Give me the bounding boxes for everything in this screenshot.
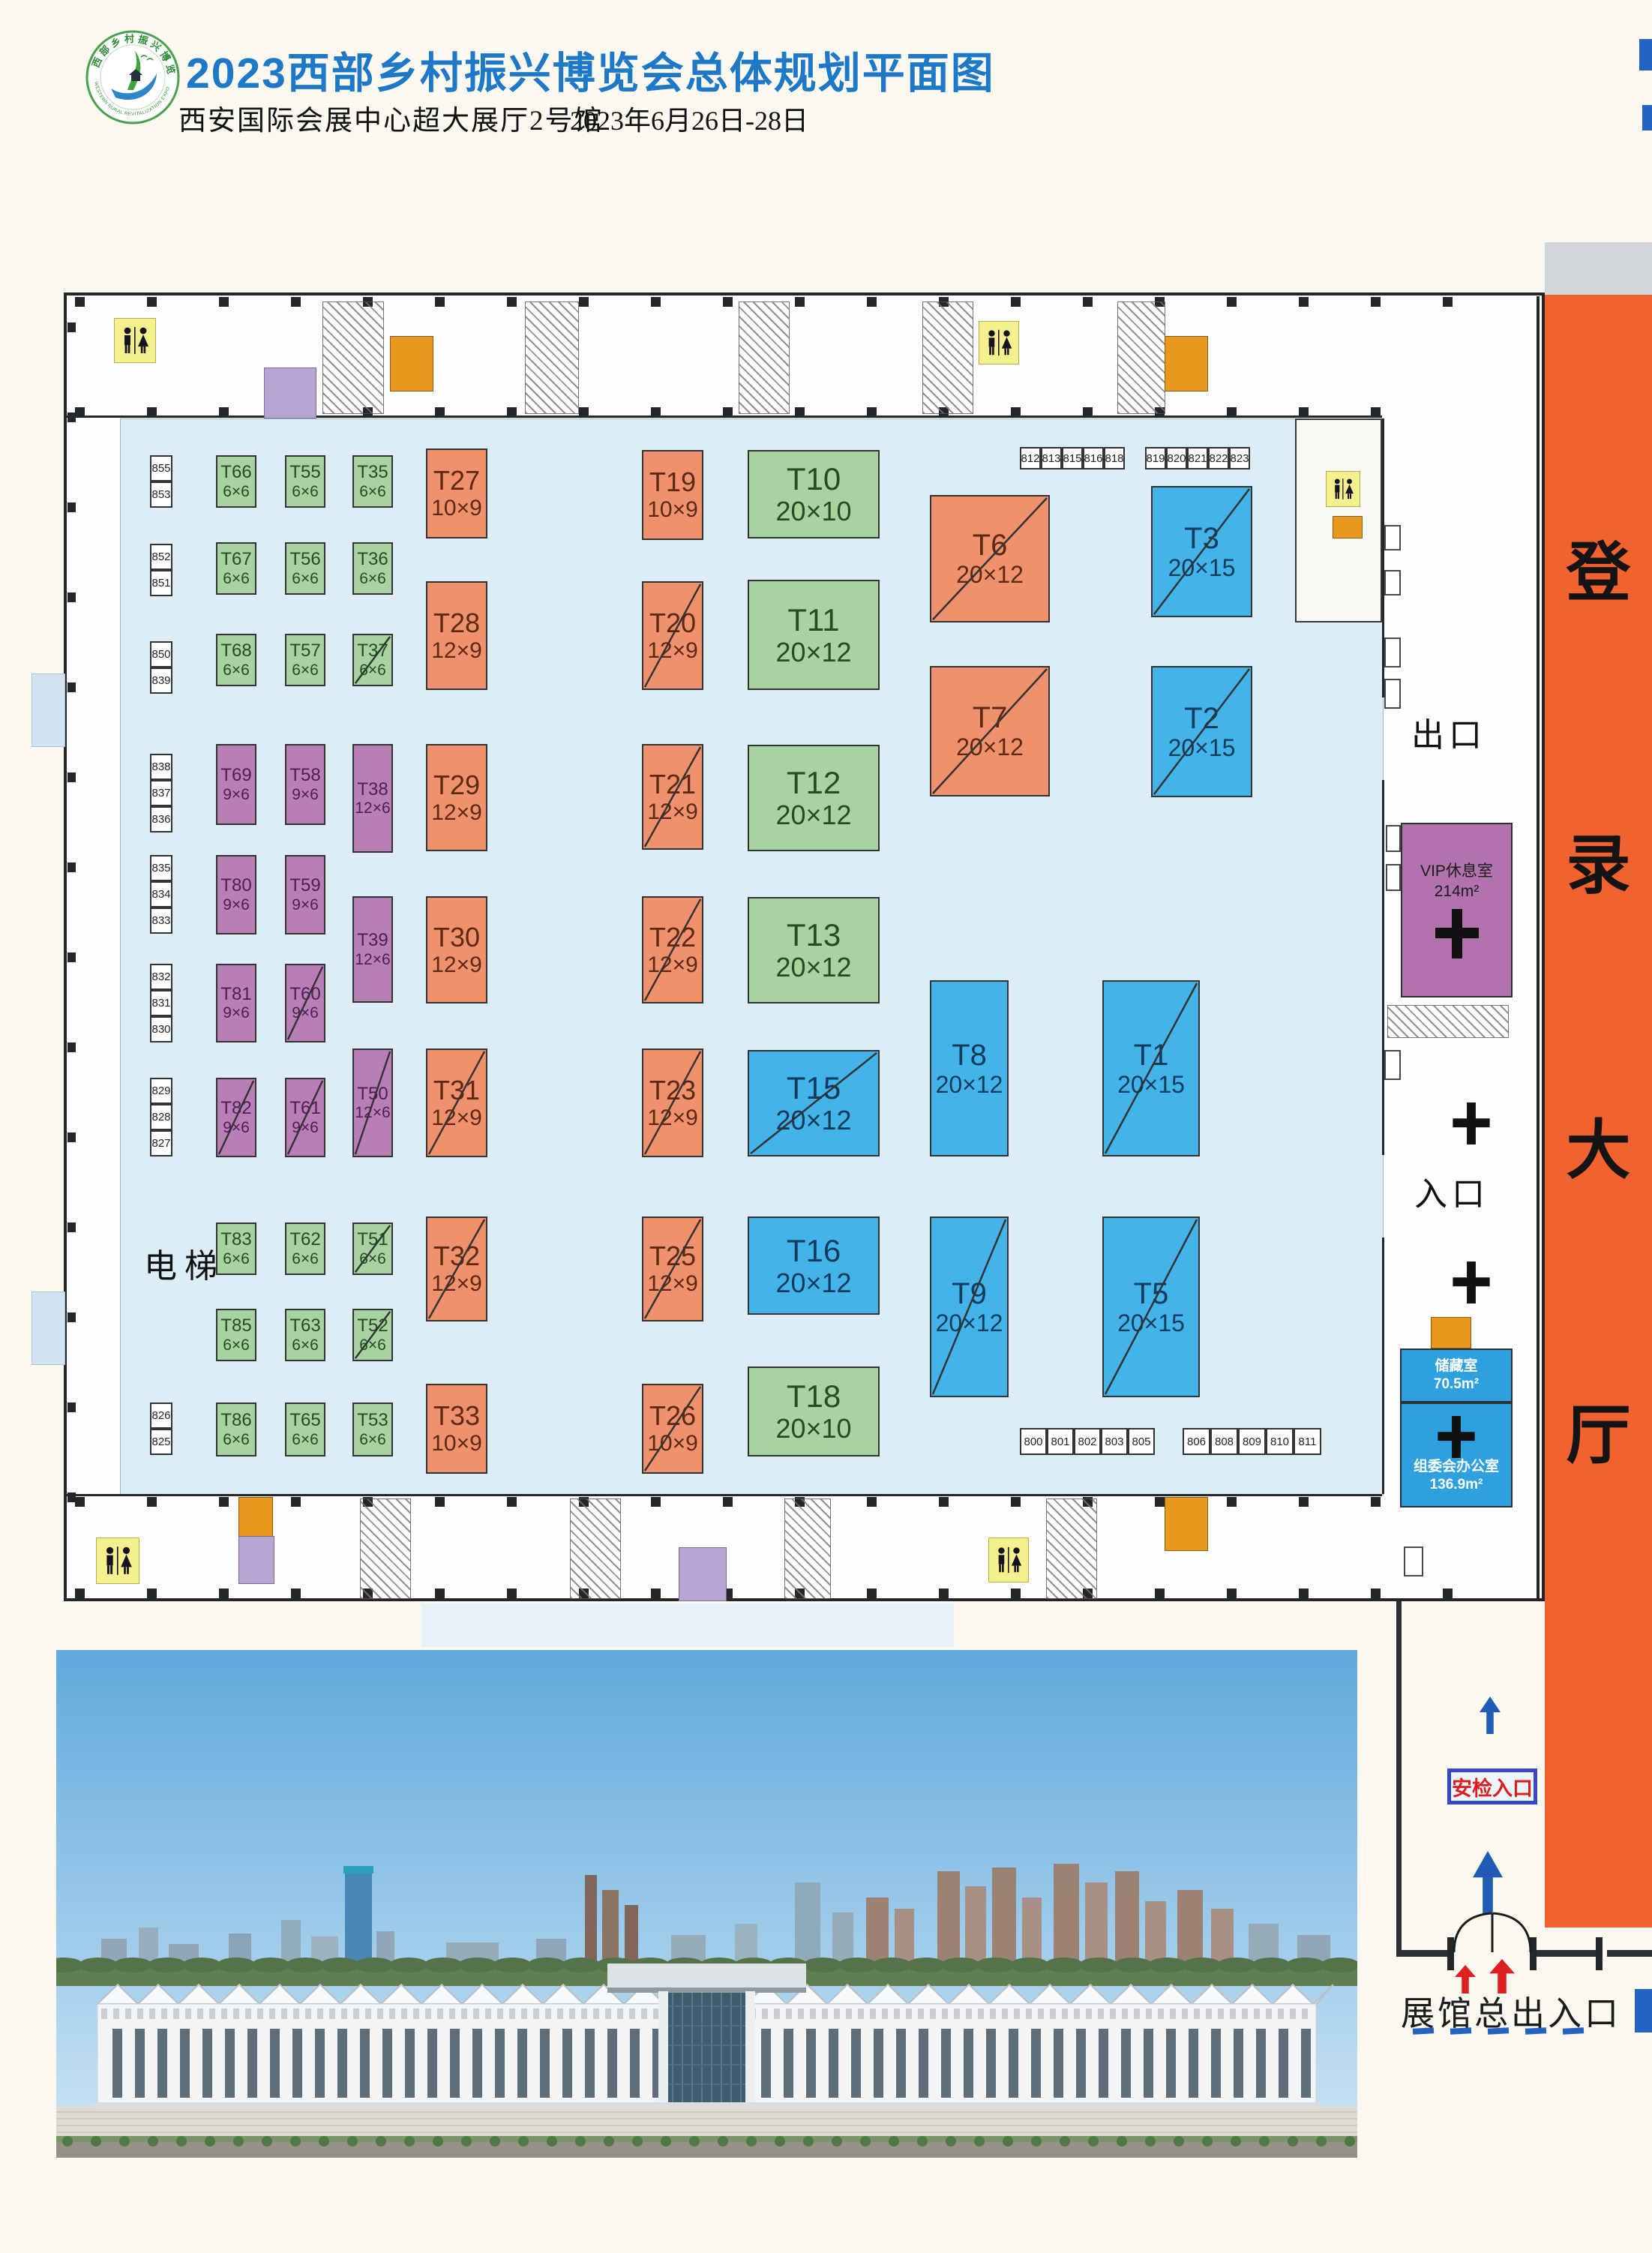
corridor-wall	[1382, 1237, 1384, 1494]
booth-cell-836: 836	[150, 806, 172, 832]
booth-dimensions: 20×10	[775, 497, 851, 526]
sold-strike-line	[1104, 982, 1198, 1155]
booth-T1: T120×15	[1102, 980, 1200, 1156]
hatched-wall	[1387, 1005, 1509, 1038]
sold-strike-line	[354, 1310, 391, 1360]
registration-hall-char: 录	[1545, 812, 1652, 906]
booth-id: T19	[649, 468, 696, 496]
storage-room: 储藏室 70.5m²	[1400, 1348, 1513, 1402]
cross-icon	[1450, 1261, 1493, 1303]
expo-logo: 西部乡村振兴博览会 WESTERN RURAL REVITALIZATION E…	[84, 28, 181, 126]
booth-T82: T829×6	[216, 1078, 256, 1157]
wall-column	[147, 1497, 157, 1507]
service-block	[1165, 1497, 1208, 1551]
sold-strike-line	[931, 496, 1048, 621]
wall-column	[1011, 297, 1021, 307]
registration-hall-char: 厅	[1545, 1382, 1652, 1476]
booth-id: T66	[220, 463, 251, 481]
booth-cell-839: 839	[150, 667, 172, 694]
door-swing-icon	[1453, 1910, 1532, 1954]
booth-T33: T3310×9	[426, 1384, 487, 1474]
sold-strike-line	[354, 635, 391, 685]
wall-column	[291, 1497, 301, 1507]
booth-T31: T3112×9	[426, 1048, 487, 1157]
booth-T51: T516×6	[352, 1222, 393, 1275]
booth-dimensions: 9×6	[292, 787, 319, 803]
booth-id: T36	[357, 550, 388, 568]
wall-column	[867, 297, 877, 307]
booth-id: T38	[357, 780, 388, 799]
booth-cell-809: 809	[1238, 1428, 1266, 1455]
wall-column	[67, 862, 76, 872]
venue-subtitle: 西安国际会展中心超大展厅2号馆	[178, 97, 604, 138]
hatched-wall	[570, 1498, 621, 1599]
outer-wall	[1532, 1950, 1596, 1957]
wall-column	[1155, 1588, 1165, 1598]
wall-column	[67, 682, 76, 692]
restroom-icon	[1326, 471, 1360, 507]
booth-dimensions: 12×9	[431, 953, 482, 977]
sold-strike-line	[643, 1050, 702, 1156]
booth-dimensions: 6×6	[359, 571, 386, 587]
registration-hall-char: 登	[1545, 520, 1652, 613]
booth-cell-830: 830	[150, 1016, 172, 1042]
wall-column	[1443, 1588, 1453, 1598]
wall-column	[507, 1497, 517, 1507]
cross-icon	[1450, 1102, 1493, 1144]
wall-column	[1227, 1588, 1237, 1598]
wall-column	[67, 1222, 76, 1232]
outer-wall	[1607, 1950, 1652, 1957]
hatched-wall	[1046, 1498, 1097, 1599]
wall-column	[67, 952, 76, 962]
wall-column	[651, 1588, 661, 1598]
wall-column	[435, 297, 445, 307]
booth-id: T83	[220, 1230, 251, 1249]
event-date: 2023年6月26日-28日	[570, 99, 808, 138]
furniture	[1384, 637, 1401, 667]
booth-cell-818: 818	[1104, 447, 1125, 469]
structure-room	[264, 367, 316, 418]
booth-dimensions: 20×12	[775, 638, 851, 667]
booth-T56: T566×6	[285, 542, 325, 595]
wall-column	[67, 592, 76, 602]
booth-T52: T526×6	[352, 1309, 393, 1361]
sold-strike-line	[427, 1218, 486, 1320]
entrance-label: 入口	[1414, 1167, 1489, 1215]
booth-id: T63	[289, 1316, 320, 1335]
booth-T57: T576×6	[285, 634, 325, 686]
office-room-name: 组委会办公室	[1414, 1458, 1499, 1476]
wall-column	[67, 772, 76, 782]
booth-cell-832: 832	[150, 964, 172, 990]
wall-column	[651, 297, 661, 307]
booth-id: T11	[787, 604, 839, 637]
booth-T32: T3212×9	[426, 1216, 487, 1321]
sold-strike-line	[1153, 487, 1251, 616]
wall-column	[1443, 297, 1453, 307]
venue-photo	[56, 1650, 1357, 2158]
booth-T10: T1020×10	[748, 450, 880, 538]
booth-dimensions: 20×12	[775, 801, 851, 829]
restroom-icon	[96, 1537, 139, 1584]
furniture	[1384, 525, 1401, 550]
sold-strike-line	[749, 1051, 878, 1155]
hatched-wall	[360, 1498, 411, 1599]
wall-column	[651, 1497, 661, 1507]
hatched-wall	[1117, 301, 1165, 414]
booth-T16: T1620×12	[748, 1216, 880, 1315]
wall-column	[1299, 297, 1309, 307]
booth-T65: T656×6	[285, 1402, 325, 1456]
hatched-wall	[739, 301, 790, 414]
wall-post	[1596, 1937, 1603, 1970]
service-block	[1333, 516, 1363, 538]
booth-T28: T2812×9	[426, 581, 487, 690]
wall-column	[67, 1312, 76, 1322]
booth-T39: T3912×6	[352, 896, 393, 1003]
wall-column	[507, 1588, 517, 1598]
wall-column	[1011, 1588, 1021, 1598]
wall-column	[1227, 1497, 1237, 1507]
wall-column	[1299, 1588, 1309, 1598]
booth-dimensions: 20×12	[775, 953, 851, 982]
booth-cell-801: 801	[1047, 1428, 1074, 1455]
booth-dimensions: 6×6	[292, 484, 319, 500]
furniture	[1384, 570, 1401, 595]
wall-column	[75, 297, 85, 307]
booth-cell-821: 821	[1187, 447, 1208, 469]
exit-label: 出口	[1411, 708, 1486, 756]
booth-cell-808: 808	[1210, 1428, 1238, 1455]
structure-block	[1545, 242, 1652, 295]
booth-T19: T1910×9	[642, 450, 703, 540]
booth-dimensions: 9×6	[223, 1005, 250, 1021]
booth-cell-812: 812	[1020, 447, 1041, 469]
booth-id: T57	[289, 641, 320, 660]
booth-T25: T2512×9	[642, 1216, 703, 1321]
booth-id: T39	[357, 931, 388, 949]
booth-cell-816: 816	[1083, 447, 1104, 469]
booth-cell-838: 838	[150, 754, 172, 780]
booth-id: T10	[787, 463, 841, 496]
booth-dimensions: 20×10	[775, 1414, 851, 1443]
booth-cell-853: 853	[150, 481, 172, 508]
booth-cell-852: 852	[150, 544, 172, 570]
booth-cell-815: 815	[1062, 447, 1083, 469]
vip-room-name: VIP休息室	[1420, 862, 1493, 881]
booth-dimensions: 12×6	[355, 800, 390, 817]
booth-T9: T920×12	[930, 1216, 1009, 1397]
booth-id: T81	[220, 985, 251, 1003]
wall-column	[219, 297, 229, 307]
sold-strike-line	[286, 965, 324, 1041]
wall-column	[939, 1588, 949, 1598]
booth-T27: T2710×9	[426, 448, 487, 538]
wall-column	[867, 1588, 877, 1598]
booth-dimensions: 6×6	[292, 1432, 319, 1448]
sold-strike-line	[643, 1218, 702, 1320]
sold-strike-line	[931, 1218, 1007, 1396]
booth-T29: T2912×9	[426, 744, 487, 851]
booth-cell-811: 811	[1294, 1428, 1321, 1455]
booth-id: T33	[433, 1402, 480, 1430]
sold-strike-line	[643, 1385, 702, 1472]
sold-strike-line	[217, 1079, 255, 1156]
wall-column	[435, 1497, 445, 1507]
sold-strike-line	[1104, 1218, 1198, 1396]
booth-T67: T676×6	[216, 542, 256, 595]
structure-room	[238, 1536, 274, 1584]
booth-dimensions: 10×9	[647, 498, 698, 522]
booth-dimensions: 6×6	[292, 1251, 319, 1267]
booth-id: T30	[433, 923, 480, 952]
booth-cell-822: 822	[1208, 447, 1229, 469]
booth-cell-855: 855	[150, 455, 172, 481]
booth-cell-851: 851	[150, 570, 172, 596]
cross-icon	[1435, 909, 1479, 958]
wall-column	[67, 1402, 76, 1412]
booth-cell-837: 837	[150, 780, 172, 806]
booth-T20: T2012×9	[642, 581, 703, 690]
edge-fragment	[1639, 39, 1652, 70]
booth-T7: T720×12	[930, 666, 1050, 796]
booth-T85: T856×6	[216, 1309, 256, 1361]
wall-column	[795, 297, 805, 307]
booth-cell-806: 806	[1183, 1428, 1210, 1455]
furniture	[1404, 1546, 1423, 1576]
booth-T30: T3012×9	[426, 896, 487, 1003]
wall-column	[1011, 1497, 1021, 1507]
restroom-icon	[114, 318, 156, 363]
furniture	[1386, 864, 1401, 891]
booth-dimensions: 6×6	[359, 484, 386, 500]
sold-strike-line	[931, 667, 1048, 795]
booth-cell-831: 831	[150, 990, 172, 1016]
booth-id: T67	[220, 550, 251, 568]
booth-id: T85	[220, 1316, 251, 1335]
booth-id: T59	[289, 876, 320, 895]
sold-strike-line	[427, 1050, 486, 1156]
booth-cell-825: 825	[150, 1429, 172, 1455]
booth-dimensions: 9×6	[223, 897, 250, 913]
wall-column	[219, 1497, 229, 1507]
booth-cell-828: 828	[150, 1104, 172, 1130]
wall-column	[723, 1497, 733, 1507]
wall-column	[1371, 1497, 1381, 1507]
wall-column	[67, 322, 76, 332]
cross-icon	[1438, 1416, 1475, 1458]
corridor-wall	[1382, 780, 1384, 1155]
booth-dimensions: 6×6	[292, 662, 319, 679]
security-entrance-label: 安检入口	[1452, 1772, 1533, 1801]
booth-T5: T520×15	[1102, 1216, 1200, 1397]
wall-column	[1227, 297, 1237, 307]
booth-id: T28	[433, 609, 480, 637]
office-room-area: 136.9m²	[1430, 1476, 1483, 1494]
booth-T50: T5012×6	[352, 1048, 393, 1157]
sold-strike-line	[643, 745, 702, 848]
booth-T38: T3812×6	[352, 744, 393, 853]
wall-column	[291, 1588, 301, 1598]
booth-dimensions: 20×12	[775, 1269, 851, 1297]
booth-T53: T536×6	[352, 1402, 393, 1456]
hatched-wall	[525, 301, 579, 414]
vip-room-area: 214m²	[1435, 882, 1480, 901]
side-bay	[31, 673, 65, 747]
booth-cell-850: 850	[150, 641, 172, 667]
booth-dimensions: 9×6	[223, 787, 250, 803]
booth-id: T53	[357, 1411, 388, 1429]
booth-T69: T699×6	[216, 744, 256, 825]
hatched-wall	[784, 1498, 831, 1599]
side-bay	[31, 1291, 65, 1365]
booth-id: T16	[787, 1234, 841, 1267]
booth-T81: T819×6	[216, 964, 256, 1042]
wall-column	[435, 1588, 445, 1598]
flow-arrow-up	[1473, 1851, 1503, 1914]
booth-dimensions: 6×6	[223, 1337, 250, 1354]
wall-column	[939, 1497, 949, 1507]
booth-T2: T220×15	[1151, 666, 1252, 797]
booth-id: T58	[289, 766, 320, 784]
booth-dimensions: 12×6	[355, 952, 390, 968]
booth-cell-827: 827	[150, 1130, 172, 1156]
booth-id: T13	[787, 919, 841, 952]
wall-column	[67, 1042, 76, 1052]
booth-T62: T626×6	[285, 1222, 325, 1275]
booth-T61: T619×6	[285, 1078, 325, 1157]
sold-strike-line	[643, 898, 702, 1002]
service-block	[390, 336, 433, 391]
booth-T6: T620×12	[930, 495, 1050, 622]
booth-dimensions: 6×6	[223, 1251, 250, 1267]
booth-id: T56	[289, 550, 320, 568]
sold-strike-line	[354, 1050, 391, 1156]
furniture	[1384, 679, 1401, 709]
wall-column	[867, 1497, 877, 1507]
booth-T63: T636×6	[285, 1309, 325, 1361]
booth-id: T69	[220, 766, 251, 784]
booth-id: T62	[289, 1230, 320, 1249]
booth-T80: T809×6	[216, 855, 256, 934]
booth-T66: T666×6	[216, 455, 256, 508]
wall-column	[147, 297, 157, 307]
booth-cell-823: 823	[1229, 447, 1250, 469]
booth-cell-820: 820	[1166, 447, 1187, 469]
booth-T68: T686×6	[216, 634, 256, 686]
booth-dimensions: 6×6	[223, 662, 250, 679]
service-block	[238, 1497, 273, 1537]
flow-arrow-up	[1480, 1696, 1501, 1734]
committee-office-room: 组委会办公室 136.9m²	[1400, 1402, 1513, 1507]
booth-cell-826: 826	[150, 1402, 172, 1429]
security-entrance-badge: 安检入口	[1447, 1768, 1537, 1804]
booth-T55: T556×6	[285, 455, 325, 508]
booth-dimensions: 20×12	[936, 1072, 1003, 1098]
booth-T3: T320×15	[1151, 486, 1252, 617]
booth-T11: T1120×12	[748, 580, 880, 690]
booth-id: T65	[289, 1411, 320, 1429]
booth-cell-805: 805	[1128, 1428, 1155, 1455]
booth-dimensions: 6×6	[223, 484, 250, 500]
wall-column	[507, 297, 517, 307]
wall-column	[219, 1588, 229, 1598]
plaza-band	[421, 1603, 954, 1647]
booth-dimensions: 6×6	[359, 1432, 386, 1448]
wall-column	[291, 297, 301, 307]
furniture	[1386, 825, 1401, 852]
booth-id: T55	[289, 463, 320, 481]
outer-wall	[1396, 1950, 1453, 1957]
wall-column	[1083, 297, 1093, 307]
registration-hall-char: 大	[1545, 1097, 1652, 1191]
hatched-wall	[922, 301, 973, 414]
booth-T21: T2112×9	[642, 744, 703, 850]
booth-id: T18	[787, 1380, 841, 1413]
restroom-icon	[988, 1537, 1029, 1582]
booth-T26: T2610×9	[642, 1384, 703, 1474]
service-block	[1431, 1317, 1471, 1348]
wall-column	[579, 297, 589, 307]
booth-T8: T820×12	[930, 980, 1009, 1156]
wall-column	[1299, 1497, 1309, 1507]
booth-T37: T376×6	[352, 634, 393, 686]
booth-dimensions: 12×9	[431, 639, 482, 663]
registration-hall-strip: 登 录 大 厅	[1545, 295, 1652, 1927]
hatched-wall	[322, 301, 384, 414]
edge-fragment	[1642, 105, 1652, 130]
wall-column	[75, 1588, 85, 1598]
booth-cell-800: 800	[1020, 1428, 1047, 1455]
booth-T86: T866×6	[216, 1402, 256, 1456]
outer-wall	[1396, 1601, 1402, 1956]
booth-dimensions: 6×6	[223, 1432, 250, 1448]
booth-T58: T589×6	[285, 744, 325, 825]
elevator-label: 电梯	[144, 1239, 225, 1287]
booth-cell-803: 803	[1101, 1428, 1128, 1455]
wall-column	[1371, 297, 1381, 307]
wall-column	[1371, 1588, 1381, 1598]
booth-dimensions: 10×9	[431, 496, 482, 520]
wall-column	[1155, 1497, 1165, 1507]
booth-cell-834: 834	[150, 881, 172, 907]
booth-T22: T2212×9	[642, 896, 703, 1003]
booth-cell-813: 813	[1041, 447, 1062, 469]
booth-T13: T1320×12	[748, 897, 880, 1003]
furniture	[1384, 1050, 1401, 1080]
wall-column	[75, 1497, 85, 1507]
structure-room	[679, 1547, 727, 1601]
booth-T23: T2312×9	[642, 1048, 703, 1157]
service-block	[1165, 336, 1208, 391]
booth-id: T29	[433, 771, 480, 799]
wall-column	[723, 297, 733, 307]
booth-dimensions: 6×6	[223, 571, 250, 587]
sold-strike-line	[286, 1079, 324, 1156]
booth-T35: T356×6	[352, 455, 393, 508]
booth-id: T86	[220, 1411, 251, 1429]
booth-id: T27	[433, 466, 480, 495]
corridor-wall	[1537, 296, 1540, 1600]
wall-line	[67, 1494, 1382, 1496]
booth-T59: T599×6	[285, 855, 325, 934]
booth-cell-835: 835	[150, 855, 172, 881]
wall-column	[67, 502, 76, 512]
booth-dimensions: 10×9	[431, 1432, 482, 1456]
main-entrance-label: 展馆总出入口	[1401, 1986, 1621, 2035]
booth-id: T35	[357, 463, 388, 481]
